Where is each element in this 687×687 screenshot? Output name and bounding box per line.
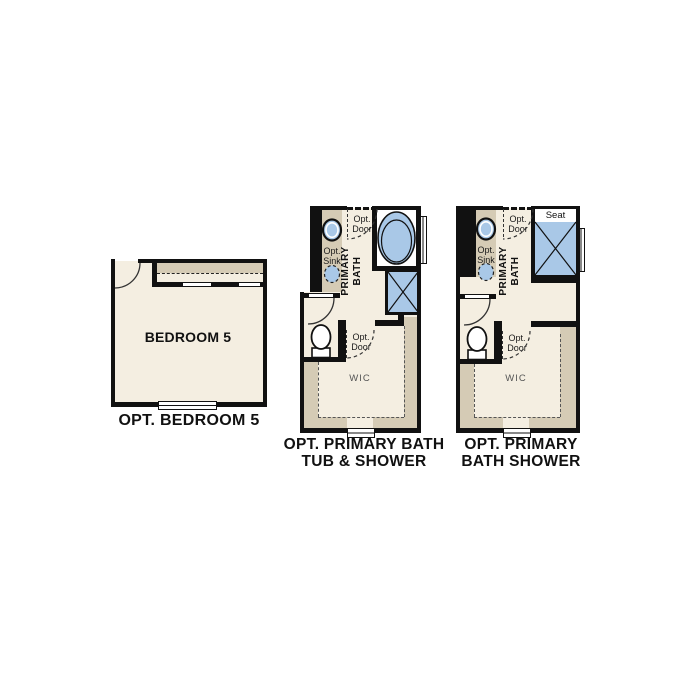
caption-line: OPT. PRIMARY [452,437,590,454]
caption-opt-primary-bath-shower: OPT. PRIMARY BATH SHOWER [452,437,590,470]
primary-bath-label: PRIMARY BATH [498,235,528,307]
tub-room-floor [377,210,416,266]
shower-pan [388,272,418,312]
opt-door-label: Opt. Door [502,333,532,353]
wic-rod-dashed [404,326,405,417]
caption-opt-bedroom-5: OPT. BEDROOM 5 [106,413,272,430]
wic-shelf-bottom [460,417,503,428]
panel-opt-primary-bath-shower: Opt. Sink Opt. Door PRIMARY BATH Seat Op… [454,204,588,440]
wic-rod-dashed [318,417,404,418]
wic-shelf-right [560,327,576,428]
entry-wall [490,294,496,299]
caption-line: OPT. PRIMARY BATH [279,437,449,454]
opt-sink-label: Opt. Sink [475,245,497,265]
wic-rod-dashed [560,334,561,417]
closet-shelf [157,263,263,273]
shower-seat: Seat [535,209,576,222]
bath-wall-right [576,206,580,430]
opt-door-label: Opt. Door [504,214,532,234]
toilet-wall-right [494,321,502,364]
caption-line: TUB & SHOWER [279,454,449,471]
opt-door-opening-dashed [503,207,533,210]
wic-shelf-bottom [304,417,347,428]
bedroom-wall-right [263,259,267,407]
bedroom-window [158,401,217,410]
wic-label: WIC [335,373,385,384]
entry-door-opening [464,294,490,299]
toilet-wall-right [338,320,346,362]
primary-bath-label: PRIMARY BATH [340,235,370,307]
closet-door-panel [238,282,261,287]
opt-door-label: Opt. Door [346,332,376,352]
wic-label: WIC [491,373,541,384]
bath-wall-chase [458,206,476,277]
panel-opt-bedroom-5: BEDROOM 5 [108,256,274,414]
wic-rod-dashed [474,417,560,418]
bath-wall-right [417,206,421,430]
panel-opt-primary-bath-tub-shower: Opt. Sink Opt. Door PRIMARY BATH Opt. Do… [298,204,430,440]
closet-rod-dashed [157,273,263,274]
caption-line: BATH SHOWER [452,454,590,471]
wic-rod-dashed [318,362,319,417]
entry-wall [334,293,340,298]
wic-rod-dashed [474,364,475,417]
sink-counter [476,210,496,277]
entry-door-opening [308,293,334,298]
floorplan-canvas: BEDROOM 5 OPT. BEDROOM 5 Opt. Sink Opt. … [0,0,687,687]
shower-pan [535,222,576,275]
caption-opt-primary-bath-tub-shower: OPT. PRIMARY BATH TUB & SHOWER [279,437,449,470]
bedroom-room-label: BEDROOM 5 [113,329,263,345]
closet-door-panel [182,282,212,287]
